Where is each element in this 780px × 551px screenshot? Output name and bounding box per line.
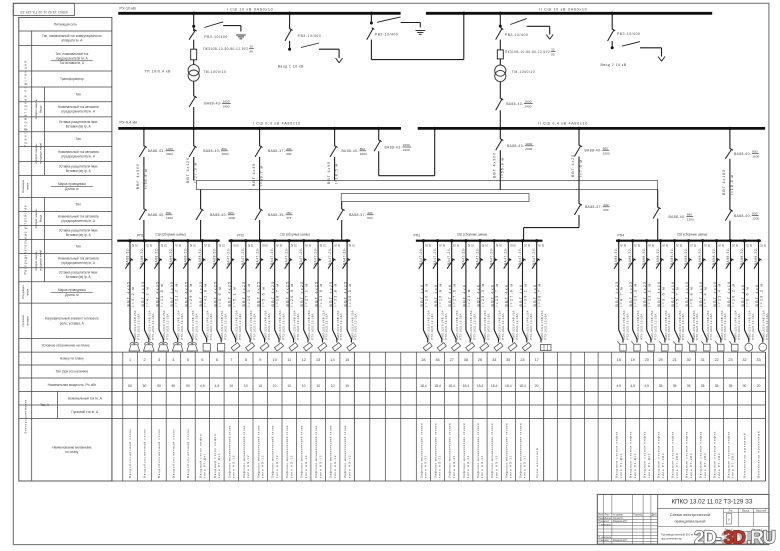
- svg-text:Дата: Дата: [652, 515, 658, 517]
- svg-text:ВВГ 4х300: ВВГ 4х300: [136, 163, 140, 189]
- svg-text:РП1: РП1: [137, 234, 144, 238]
- svg-text:РТЛ-1021 12-16А: РТЛ-1021 12-16А: [681, 313, 685, 340]
- svg-text:РУ-10 кВ: РУ-10 кВ: [119, 6, 136, 11]
- svg-text:РВЗ-10/400: РВЗ-10/400: [375, 33, 398, 37]
- svg-text:35: 35: [506, 358, 510, 362]
- svg-text:РТЛ-1021 12-16А: РТЛ-1021 12-16А: [709, 313, 713, 340]
- svg-text:РТЛ-1021 12-16А: РТЛ-1021 12-16А: [667, 313, 671, 340]
- svg-text:l=18,5 м: l=18,5 м: [335, 163, 339, 184]
- svg-text:35: 35: [715, 384, 719, 388]
- svg-text:ПМЛ-2210 У4В 25А: ПМЛ-2210 У4В 25А: [748, 310, 752, 340]
- svg-text:ВА88-40-: ВА88-40-: [210, 213, 227, 217]
- svg-text:2D-: 2D-: [694, 527, 721, 548]
- svg-text:ВВГ 4х300: ВВГ 4х300: [493, 152, 497, 178]
- svg-text:ПМЛ-2210 У4В 25А: ПМЛ-2210 У4В 25А: [650, 310, 654, 340]
- svg-text:ПМЛ-2210 У4В 25А: ПМЛ-2210 У4В 25А: [206, 310, 210, 340]
- svg-text:10: 10: [345, 384, 349, 388]
- svg-text:ПМЛ-2210 У4В 25А: ПМЛ-2210 У4В 25А: [336, 310, 340, 340]
- svg-text:3D: 3D: [724, 527, 746, 548]
- svg-text:l=10,5 м: l=10,5 м: [348, 283, 352, 307]
- svg-text:600: 600: [286, 152, 291, 156]
- svg-text:РТЛ-1021 12-16А: РТЛ-1021 12-16А: [751, 313, 755, 340]
- svg-text:l=9,6 м: l=9,6 м: [746, 286, 750, 306]
- svg-text:предохранителя Iн, А: предохранителя Iн, А: [56, 56, 88, 60]
- svg-text:РТЛ-1021 12-16А: РТЛ-1021 12-16А: [487, 313, 491, 340]
- svg-text:17: 17: [535, 358, 539, 362]
- svg-text:Тип, номинальный ток: Тип, номинальный ток: [55, 52, 89, 56]
- svg-text:l=31,8 м: l=31,8 м: [334, 283, 338, 307]
- svg-text:принципиальной: принципиальной: [674, 518, 705, 523]
- svg-text:ВВГ 4х25: ВВГ 4х25: [315, 281, 319, 307]
- svg-text:типа НЭ-12: типа НЭ-12: [289, 455, 293, 478]
- svg-text:ПМЛ-2210 У4В 25А: ПМЛ-2210 У4В 25А: [177, 310, 181, 340]
- svg-text:типа НЭ-31: типа НЭ-31: [509, 455, 513, 478]
- svg-text:типа НЭ-31: типа НЭ-31: [424, 455, 428, 478]
- svg-text:ПМЛ-2210 У4В 25А: ПМЛ-2210 У4В 25А: [162, 310, 166, 340]
- svg-text:1: 1: [129, 358, 131, 362]
- svg-text:ПМЛ-2210 У4В 25А: ПМЛ-2210 У4В 25А: [191, 310, 195, 340]
- svg-text:2400: 2400: [223, 105, 230, 109]
- svg-text:10: 10: [316, 384, 320, 388]
- svg-text:типа НЭ-31: типа НЭ-31: [452, 455, 456, 478]
- svg-text:34: 34: [492, 358, 496, 362]
- svg-text:36: 36: [435, 358, 439, 362]
- svg-text:23: 23: [728, 358, 732, 362]
- svg-text:Трансформаторная подстанция: Трансформаторная подстанция: [23, 59, 27, 147]
- svg-text:l=56,9 м: l=56,9 м: [500, 157, 504, 178]
- svg-text:ВА47-29-: ВА47-29-: [475, 247, 479, 265]
- svg-text:ПМЛ-2210 У4В 25А: ПМЛ-2210 У4В 25А: [540, 310, 544, 340]
- svg-text:ПМЛ-2210 У4В 25А: ПМЛ-2210 У4В 25А: [469, 310, 473, 340]
- svg-text:Ввода: Ввода: [38, 214, 42, 222]
- svg-text:l=3,6 м: l=3,6 м: [662, 286, 666, 306]
- svg-text:Марка проводника: Марка проводника: [58, 288, 86, 292]
- svg-text:ВА88-37-: ВА88-37-: [349, 213, 366, 217]
- svg-text:ВА88-43-: ВА88-43-: [385, 145, 402, 149]
- svg-text:l=5,6 м: l=5,6 м: [261, 286, 265, 306]
- svg-text:18,4: 18,4: [420, 384, 427, 388]
- svg-text:ВВГ 4х35: ВВГ 4х35: [126, 281, 130, 307]
- svg-text:ПМЛ-2210 У4В 25А: ПМЛ-2210 У4В 25А: [497, 310, 501, 340]
- svg-text:РТЛ-1021 12-16А: РТЛ-1021 12-16А: [238, 313, 242, 340]
- svg-text:ВА47-29-: ВА47-29-: [256, 247, 260, 265]
- svg-text:l=10,6 м: l=10,6 м: [424, 283, 428, 307]
- svg-text:РТЛ-1021 12-16А: РТЛ-1021 12-16А: [639, 313, 643, 340]
- svg-text:2000: 2000: [525, 147, 532, 151]
- svg-text:Условное обозначение на плане: Условное обозначение на плане: [41, 344, 89, 348]
- svg-text:l=7,9 м: l=7,9 м: [579, 159, 583, 177]
- svg-text:ВВГ 4х120: ВВГ 4х120: [186, 157, 190, 183]
- svg-text:ВА47-29-: ВА47-29-: [328, 247, 332, 265]
- svg-text:ПМЛ-2210 У4В 25А: ПМЛ-2210 У4В 25А: [350, 310, 354, 340]
- svg-text:Аппарат защиты: Аппарат защиты: [34, 250, 38, 270]
- svg-text:ВВГ 4х25: ВВГ 4х25: [629, 281, 633, 307]
- svg-text:Вводобольничный стояк: Вводобольничный стояк: [128, 428, 132, 478]
- svg-text:Трансформатор: Трансформатор: [60, 77, 84, 81]
- svg-text:Вводобольничный стояк: Вводобольничный стояк: [157, 428, 161, 478]
- svg-text:l=5,7 м: l=5,7 м: [676, 286, 680, 306]
- svg-text:4,5: 4,5: [200, 384, 205, 388]
- svg-text:Тип (при его наличии): Тип (при его наличии): [56, 370, 88, 374]
- svg-text:ВА88-43-: ВА88-43-: [148, 149, 165, 153]
- svg-text:2: 2: [143, 358, 145, 362]
- svg-text:ВА88-40-: ВА88-40-: [148, 213, 165, 217]
- svg-text:.RU: .RU: [747, 527, 776, 548]
- svg-text:типа РТ-2Б2: типа РТ-2Б2: [689, 453, 693, 478]
- svg-text:l=13,6 м: l=13,6 м: [319, 283, 323, 307]
- svg-text:l=13,4 м: l=13,4 м: [718, 283, 722, 307]
- svg-text:КПКО 13.02 11.02 ТЗ-129 ЗЗ: КПКО 13.02 11.02 ТЗ-129 ЗЗ: [20, 10, 67, 14]
- svg-text:ПМЛ-2210 У4В 25А: ПМЛ-2210 У4В 25А: [664, 310, 668, 340]
- svg-text:ВА47-29-: ВА47-29-: [532, 247, 536, 265]
- svg-text:10: 10: [229, 384, 233, 388]
- svg-text:ПМЛ-2210 У4В 25А: ПМЛ-2210 У4В 25А: [455, 310, 459, 340]
- svg-text:33: 33: [756, 358, 760, 362]
- svg-text:4,5: 4,5: [644, 384, 649, 388]
- svg-text:l=4,2 м: l=4,2 м: [146, 286, 150, 306]
- svg-text:Уставка расцепителя Iмах: Уставка расцепителя Iмах: [59, 228, 98, 232]
- svg-text:ВВГ 4х35: ВВГ 4х35: [141, 281, 145, 307]
- svg-text:РВЗ-10/400: РВЗ-10/400: [617, 32, 640, 36]
- svg-text:600: 600: [603, 208, 608, 212]
- svg-text:ПМЛ-2210 У4В 25А: ПМЛ-2210 У4В 25А: [692, 310, 696, 340]
- svg-text:ВВГ 4х6: ВВГ 4х6: [462, 284, 466, 307]
- svg-text:типа НЭ-12: типа НЭ-12: [246, 455, 250, 478]
- svg-text:ПМЛ-2210 У4В 25А: ПМЛ-2210 У4В 25А: [292, 310, 296, 340]
- svg-text:РТЛ-1021 12-16А: РТЛ-1021 12-16А: [195, 313, 199, 340]
- svg-text:ВВГ 4х6: ВВГ 4х6: [755, 284, 759, 307]
- svg-text:ВА47-29-: ВА47-29-: [447, 247, 451, 265]
- svg-text:l=42,8 м: l=42,8 м: [203, 283, 207, 307]
- svg-text:Проверил: Проверил: [599, 521, 610, 523]
- svg-text:ВВГ 4х25: ВВГ 4х25: [329, 281, 333, 307]
- svg-text:типа Р1-Дч1: типа Р1-Дч1: [647, 453, 651, 478]
- svg-text:линия: линия: [26, 182, 29, 190]
- svg-text:Вентилятор приточный: Вентилятор приточный: [757, 431, 761, 478]
- svg-text:ТМ-1000/10: ТМ-1000/10: [203, 70, 226, 74]
- svg-text:ВА47-29-: ВА47-29-: [490, 247, 494, 265]
- svg-text:ВА88-32-: ВА88-32-: [198, 247, 202, 265]
- svg-text:28: 28: [421, 358, 425, 362]
- svg-text:80: 80: [551, 53, 555, 57]
- svg-text:10: 10: [302, 384, 306, 388]
- svg-text:Разработал: Разработал: [599, 518, 612, 520]
- svg-text:1000: 1000: [166, 147, 173, 151]
- svg-text:12: 12: [302, 358, 306, 362]
- svg-text:l=13,3 м: l=13,3 м: [634, 283, 638, 307]
- svg-text:50: 50: [250, 45, 254, 49]
- svg-text:l=18,5 м: l=18,5 м: [730, 174, 734, 195]
- svg-text:ПМЛ-2210 У4В 25А: ПМЛ-2210 У4В 25А: [148, 310, 152, 340]
- svg-text:ВА47-29-: ВА47-29-: [270, 247, 274, 265]
- svg-text:l=16,8 м: l=16,8 м: [439, 283, 443, 307]
- svg-text:ВВГ 4х16: ВВГ 4х16: [713, 281, 717, 307]
- svg-text:РТЛ-1021 12-16А: РТЛ-1021 12-16А: [296, 313, 300, 340]
- svg-text:линия: линия: [26, 288, 29, 296]
- svg-text:типа РТ-2Б2: типа РТ-2Б2: [717, 453, 721, 478]
- svg-text:ПМЛ-2210 У4В 25А: ПМЛ-2210 У4В 25А: [706, 310, 710, 340]
- svg-text:Пусковой ток Iп, А: Пусковой ток Iп, А: [71, 410, 99, 414]
- svg-text:типа Р1-Дч1: типа Р1-Дч1: [619, 453, 623, 478]
- svg-text:РТЛ-1021 12-16А: РТЛ-1021 12-16А: [501, 313, 505, 340]
- svg-text:(предохранителя) Iн, А: (предохранителя) Iн, А: [61, 110, 96, 114]
- svg-text:l=25,7 м: l=25,7 м: [495, 283, 499, 307]
- svg-text:ВВГ 4х25: ВВГ 4х25: [300, 281, 304, 307]
- svg-text:l=18,7 м: l=18,7 м: [276, 283, 280, 307]
- svg-text:600: 600: [367, 216, 372, 220]
- svg-text:l=49,7 м: l=49,7 м: [260, 165, 264, 186]
- svg-text:ВА47-29-: ВА47-29-: [518, 247, 522, 265]
- svg-text:РП4: РП4: [618, 234, 625, 238]
- svg-text:типа НЭ-12: типа НЭ-12: [275, 455, 279, 478]
- svg-text:35: 35: [659, 384, 663, 388]
- svg-text:Уставка расцепителя Iмах: Уставка расцепителя Iмах: [59, 164, 98, 168]
- svg-text:ПМЛ-2210 У4В 25А: ПМЛ-2210 У4В 25А: [235, 310, 239, 340]
- svg-text:ВВГ 4х25: ВВГ 4х25: [615, 281, 619, 307]
- svg-text:Номер по плану: Номер по плану: [60, 357, 84, 361]
- svg-text:аппарата Iн, А: аппарата Iн, А: [61, 39, 83, 43]
- svg-text:ВА88-32-: ВА88-32-: [754, 247, 758, 265]
- svg-text:ВА88-40-: ВА88-40-: [734, 152, 751, 156]
- svg-text:типа НЭ-12: типа НЭ-12: [333, 455, 337, 478]
- svg-text:ВВГ 4х25: ВВГ 4х25: [228, 281, 232, 307]
- svg-text:ВА47-29-: ВА47-29-: [504, 247, 508, 265]
- svg-text:РП2: РП2: [237, 234, 244, 238]
- svg-text:18,4: 18,4: [519, 384, 526, 388]
- svg-text:Номинальный ток автомата: Номинальный ток автомата: [58, 214, 99, 218]
- svg-text:РТЛ-1021 12-16А: РТЛ-1021 12-16А: [267, 313, 271, 340]
- svg-text:РВЗ-10/400: РВЗ-10/400: [298, 34, 321, 38]
- svg-text:35: 35: [673, 384, 677, 388]
- svg-text:типа РТ-Дч1: типа РТ-Дч1: [203, 453, 207, 478]
- svg-text:Схема электрической: Схема электрической: [670, 512, 710, 517]
- svg-text:РТЛ-1021 12-16А: РТЛ-1021 12-16А: [430, 313, 434, 340]
- svg-text:ВА88-32-: ВА88-32-: [642, 247, 646, 265]
- svg-text:35: 35: [729, 384, 733, 388]
- svg-text:ПМЛ-2210 У4В 25А: ПМЛ-2210 У4В 25А: [483, 310, 487, 340]
- svg-text:ВВГ 4х25: ВВГ 4х25: [344, 281, 348, 307]
- svg-text:ВВГ 4х185: ВВГ 4х185: [722, 169, 726, 195]
- svg-text:РТЛ-1021 12-16А: РТЛ-1021 12-16А: [151, 313, 155, 340]
- svg-text:(предохранителя) Iн, А: (предохранителя) Iн, А: [61, 154, 96, 158]
- svg-text:II СШ 0,4 кВ 4А80х10: II СШ 0,4 кВ 4А80х10: [538, 122, 588, 126]
- svg-text:ПМЛ-2210 У4В 25А: ПМЛ-2210 У4В 25А: [441, 310, 445, 340]
- svg-text:Вставки (Iв) Iр, А: Вставки (Iв) Iр, А: [66, 125, 92, 129]
- svg-text:РТЛ-1021 12-16А: РТЛ-1021 12-16А: [765, 313, 769, 340]
- svg-text:ПМЛ-2210 У4В 25А: ПМЛ-2210 У4В 25А: [720, 310, 724, 340]
- svg-text:Уставка расцепителя Iмах: Уставка расцепителя Iмах: [59, 120, 98, 124]
- svg-text:ВА88-43-: ВА88-43-: [507, 144, 524, 148]
- svg-text:Утвердил: Утвердил: [599, 540, 610, 542]
- svg-text:6: 6: [201, 358, 203, 362]
- svg-text:ВВГ 4х25: ВВГ 4х25: [199, 281, 203, 307]
- svg-text:11: 11: [287, 358, 291, 362]
- svg-text:РТЛ-1021 12-16А: РТЛ-1021 12-16А: [543, 313, 547, 340]
- svg-text:Длина, м: Длина, м: [65, 187, 78, 191]
- svg-text:ВВГ 4х25: ВВГ 4х25: [257, 281, 261, 307]
- svg-text:ПК310В-10-50-80-12,5У2: ПК310В-10-50-80-12,5У2: [505, 50, 550, 54]
- svg-text:4,5: 4,5: [630, 384, 635, 388]
- svg-text:ВА47-29-: ВА47-29-: [343, 247, 347, 265]
- svg-text:9: 9: [259, 358, 261, 362]
- svg-text:18,4: 18,4: [491, 384, 498, 388]
- svg-text:ПМЛ-2210 У4В 25А: ПМЛ-2210 У4В 25А: [636, 310, 640, 340]
- svg-text:Ток вставки Iв, А: Ток вставки Iв, А: [60, 61, 85, 65]
- svg-text:4: 4: [172, 358, 174, 362]
- svg-text:8: 8: [245, 358, 247, 362]
- svg-text:ВВГ 4х6: ВВГ 4х6: [491, 284, 495, 307]
- svg-text:ВВГ 4х16: ВВГ 4х16: [671, 281, 675, 307]
- svg-text:680: 680: [687, 213, 692, 217]
- svg-text:1600: 1600: [525, 100, 532, 104]
- svg-text:Аппарат защиты: Аппарат защиты: [34, 99, 38, 119]
- svg-text:1600: 1600: [752, 155, 759, 159]
- svg-text:ВВГ 4х6: ВВГ 4х6: [476, 284, 480, 307]
- svg-text:ПМЛ-2210 У4В 25А: ПМЛ-2210 У4В 25А: [622, 310, 626, 340]
- svg-text:РТЛ-1021 12-16А: РТЛ-1021 12-16А: [166, 313, 170, 340]
- svg-text:Вентилятор вытяжной: Вентилятор вытяжной: [743, 433, 747, 478]
- svg-text:типа НЭ-31: типа НЭ-31: [494, 455, 498, 478]
- svg-text:l=28,7 м: l=28,7 м: [538, 283, 542, 307]
- svg-text:по плану: по плану: [65, 450, 79, 454]
- svg-text:15: 15: [345, 358, 349, 362]
- svg-text:ВВГ 4х16: ВВГ 4х16: [727, 281, 731, 307]
- svg-text:ТП 10/0,4 кВ: ТП 10/0,4 кВ: [144, 69, 171, 73]
- svg-text:800: 800: [360, 147, 365, 151]
- svg-text:4,5: 4,5: [215, 384, 220, 388]
- svg-text:ПМЛ-2210 У4В 25А: ПМЛ-2210 У4В 25А: [278, 310, 282, 340]
- svg-text:l=11,8 м: l=11,8 м: [160, 283, 164, 307]
- svg-text:Фёдоров Д.Н.: Фёдоров Д.Н.: [613, 520, 628, 523]
- svg-text:18,4: 18,4: [505, 384, 512, 388]
- svg-text:30: 30: [686, 358, 690, 362]
- svg-text:ВВГ 4х35: ВВГ 4х35: [155, 281, 159, 307]
- svg-text:ВА88-40-: ВА88-40-: [585, 149, 602, 153]
- svg-text:ВВГ 4х16: ВВГ 4х16: [657, 281, 661, 307]
- svg-text:ВА88-35-: ВА88-35-: [268, 213, 285, 217]
- svg-text:СШ (сборные шины): СШ (сборные шины): [677, 233, 707, 237]
- svg-text:ВА47-29-: ВА47-29-: [433, 247, 437, 265]
- svg-text:1600: 1600: [403, 143, 410, 147]
- svg-text:Тип, номинальный ток коммутаци: Тип, номинальный ток коммутационного: [42, 34, 102, 38]
- svg-text:ВА47-29-: ВА47-29-: [314, 247, 318, 265]
- svg-text:ВА88-32-: ВА88-32-: [140, 247, 144, 265]
- svg-text:35: 35: [701, 384, 705, 388]
- svg-text:3: 3: [158, 358, 160, 362]
- svg-text:Номинальный ток автомата: Номинальный ток автомата: [58, 150, 99, 154]
- svg-text:ПМЛ-2210 У4В 25А: ПМЛ-2210 У4В 25А: [321, 310, 325, 340]
- svg-text:19: 19: [631, 358, 635, 362]
- svg-text:ВВГ 4х16: ВВГ 4х16: [699, 281, 703, 307]
- svg-text:типа РТ-Дч1: типа РТ-Дч1: [217, 453, 221, 478]
- svg-text:32: 32: [742, 358, 746, 362]
- svg-text:РТЛ-1021 12-16А: РТЛ-1021 12-16А: [695, 313, 699, 340]
- svg-text:ВА47-29-: ВА47-29-: [419, 247, 423, 265]
- svg-text:ПМЛ-2210 У4В 25А: ПМЛ-2210 У4В 25А: [512, 310, 516, 340]
- svg-text:Уставка расцепителя Iмах: Уставка расцепителя Iмах: [59, 271, 98, 275]
- svg-text:ПК310В-10-50-80-12,5У2: ПК310В-10-50-80-12,5У2: [203, 47, 248, 51]
- svg-text:10: 10: [273, 358, 277, 362]
- svg-text:ПМЛ-2210 У4В 25А: ПМЛ-2210 У4В 25А: [249, 310, 253, 340]
- svg-text:РВЗ-10/400: РВЗ-10/400: [505, 33, 528, 37]
- svg-text:РТЛ-1021 12-16А: РТЛ-1021 12-16А: [515, 313, 519, 340]
- svg-text:ВА88-32-: ВА88-32-: [154, 247, 158, 265]
- svg-text:ВА88-32-: ВА88-32-: [656, 247, 660, 265]
- svg-text:ВА88-40-: ВА88-40-: [734, 214, 751, 218]
- svg-text:ВА88-32-: ВА88-32-: [125, 247, 129, 265]
- svg-text:Номинальный ток автомата: Номинальный ток автомата: [58, 105, 99, 109]
- svg-text:ВА88-32-: ВА88-32-: [726, 247, 730, 265]
- svg-text:ВА88-37-: ВА88-37-: [268, 149, 285, 153]
- svg-text:18,4: 18,4: [448, 384, 455, 388]
- svg-text:4,5: 4,5: [616, 384, 621, 388]
- svg-text:отходящих линий: отходящих линий: [38, 250, 42, 272]
- svg-text:РТЛ-1021 12-16А: РТЛ-1021 12-16А: [653, 313, 657, 340]
- svg-text:ВВГ 4х25: ВВГ 4х25: [271, 281, 275, 307]
- svg-text:Вводобольничный стояк: Вводобольничный стояк: [172, 428, 176, 478]
- svg-text:1600: 1600: [222, 152, 229, 156]
- svg-text:ВВГ 4х25: ВВГ 4х25: [242, 281, 246, 307]
- svg-text:(предохранителя) Iн, А: (предохранителя) Iн, А: [61, 261, 96, 265]
- svg-text:20: 20: [757, 384, 761, 388]
- svg-text:24: 24: [520, 358, 524, 362]
- svg-text:50: 50: [172, 384, 176, 388]
- svg-text:Вставки (Iв) Iр, А: Вставки (Iв) Iр, А: [66, 169, 92, 173]
- svg-text:ПМЛ-2210 У4В 25А: ПМЛ-2210 У4В 25А: [526, 310, 530, 340]
- svg-text:Ввод 2 10 кВ: Ввод 2 10 кВ: [601, 63, 627, 67]
- svg-text:Кран насосной: Кран насосной: [535, 448, 539, 478]
- svg-text:ВА47-29-: ВА47-29-: [285, 247, 289, 265]
- svg-text:Тип: Тип: [76, 203, 82, 207]
- svg-text:ВА88-32-: ВА88-32-: [628, 247, 632, 265]
- svg-text:ВА88-37-: ВА88-37-: [585, 205, 602, 209]
- svg-text:ПМЛ-2210 У4В 25А: ПМЛ-2210 У4В 25А: [762, 310, 766, 340]
- svg-text:ПМЛ-2210 У4В 25А: ПМЛ-2210 У4В 25А: [220, 310, 224, 340]
- svg-text:ВВГ 4х25: ВВГ 4х25: [643, 281, 647, 307]
- svg-text:типа Р1-Дч1: типа Р1-Дч1: [633, 453, 637, 478]
- svg-text:ПМЛ-2210 У4В 25А: ПМЛ-2210 У4В 25А: [264, 310, 268, 340]
- svg-text:типа НЭ-31: типа НЭ-31: [523, 455, 527, 478]
- svg-text:27: 27: [450, 358, 454, 362]
- svg-text:ВА47-29-: ВА47-29-: [241, 247, 245, 265]
- svg-text:l=13,1 м: l=13,1 м: [648, 283, 652, 307]
- svg-text:l=8,7 м: l=8,7 м: [620, 286, 624, 306]
- svg-text:90: 90: [743, 384, 747, 388]
- svg-text:l=1,9 м: l=1,9 м: [218, 286, 222, 306]
- svg-text:Номинальный ток Iн, А: Номинальный ток Iн, А: [68, 396, 103, 400]
- svg-text:Номинальная мощность, Рн, кВт: Номинальная мощность, Рн, кВт: [48, 383, 97, 387]
- svg-text:1600: 1600: [360, 152, 367, 156]
- svg-text:РТЛ-1021 12-16А: РТЛ-1021 12-16А: [137, 313, 141, 340]
- svg-text:2400: 2400: [403, 148, 410, 152]
- svg-text:РТЛ-1021 12-16А: РТЛ-1021 12-16А: [325, 313, 329, 340]
- svg-text:ВВГ 4х35: ВВГ 4х35: [252, 163, 256, 186]
- svg-text:18,4: 18,4: [434, 384, 441, 388]
- svg-text:РТЛ-1021 12-16А: РТЛ-1021 12-16А: [354, 313, 358, 340]
- svg-text:РТЛ-1021 12-16А: РТЛ-1021 12-16А: [224, 313, 228, 340]
- svg-text:10: 10: [244, 384, 248, 388]
- svg-text:l=21,2 м: l=21,2 м: [174, 283, 178, 307]
- svg-text:Ввод 1 10 кВ: Ввод 1 10 кВ: [278, 64, 304, 68]
- svg-text:ВВГ 4х6: ВВГ 4х6: [434, 284, 438, 307]
- svg-text:Пусковой: Пусковой: [21, 315, 25, 327]
- svg-text:РТЛ-1021 12-16А: РТЛ-1021 12-16А: [737, 313, 741, 340]
- svg-text:ВВГ 4х25: ВВГ 4х25: [213, 281, 217, 307]
- svg-text:l=16,2 м: l=16,2 м: [732, 283, 736, 307]
- svg-text:Питающая сеть: Питающая сеть: [54, 22, 77, 26]
- svg-text:Отходящая: Отходящая: [21, 285, 25, 299]
- svg-text:1200: 1200: [752, 217, 759, 221]
